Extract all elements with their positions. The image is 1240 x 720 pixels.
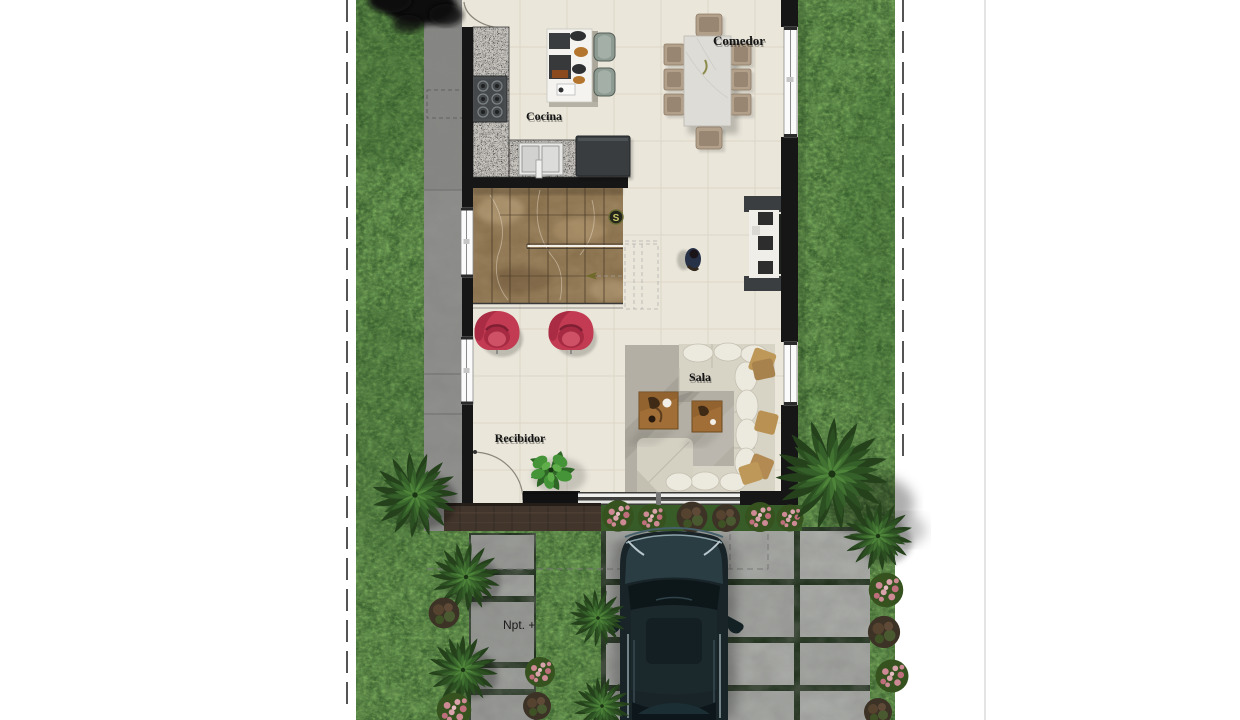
svg-text:Comedor: Comedor <box>713 33 765 48</box>
svg-text:S: S <box>613 213 620 224</box>
svg-text:Sala: Sala <box>689 370 711 384</box>
svg-text:Cocina: Cocina <box>526 109 562 123</box>
svg-text:Recibidor: Recibidor <box>495 431 546 445</box>
svg-text:Npt. +: Npt. + <box>503 618 535 632</box>
